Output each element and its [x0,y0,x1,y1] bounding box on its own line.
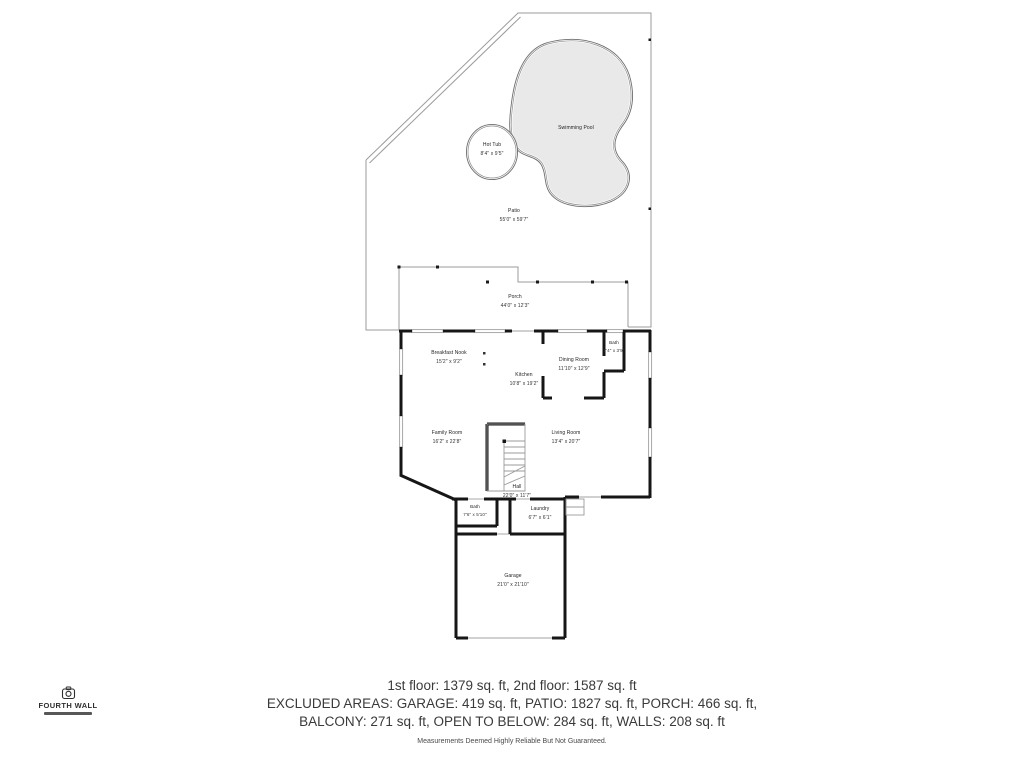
area-summary-line3: BALCONY: 271 sq. ft, OPEN TO BELOW: 284 … [0,713,1024,731]
room-name: Garage [497,572,529,581]
dining-room-label: Dining Room 11'10" x 12'9" [558,356,589,373]
floor-plan-page: Swimming Pool Hot Tub 8'4" x 9'5" Patio … [0,0,1024,768]
fourth-wall-logo: FOURTH WALL [22,686,114,715]
bath-upper-label: Bath 7'4" x 3'9" [604,339,625,354]
area-summary-line2: EXCLUDED AREAS: GARAGE: 419 sq. ft, PATI… [0,695,1024,713]
room-name: Hall [503,483,531,492]
area-summary: 1st floor: 1379 sq. ft, 2nd floor: 1587 … [0,677,1024,731]
family-room-label: Family Room 16'2" x 22'8" [432,429,463,446]
porch-posts [398,266,629,284]
room-name: Dining Room [558,356,589,365]
room-dims: 55'0" x 59'7" [500,216,529,225]
measurement-disclaimer: Measurements Deemed Highly Reliable But … [0,738,1024,745]
room-dims: 7'4" x 3'9" [604,347,625,355]
room-name: Porch [501,293,530,302]
room-dims: 11'10" x 12'9" [558,365,589,374]
room-name: Bath [604,339,625,347]
breakfast-nook-label: Breakfast Nook 15'2" x 9'2" [431,349,467,366]
room-dims: 44'0" x 12'3" [501,302,530,311]
room-name: Swimming Pool [558,124,594,133]
logo-name: FOURTH WALL [22,701,114,710]
hall-label: Hall 22'0" x 11'7" [503,483,531,500]
logo-tagline [44,712,92,715]
room-name: Family Room [432,429,463,438]
room-dims: 8'4" x 9'5" [481,150,504,159]
room-dims: 16'2" x 22'8" [432,438,463,447]
room-dims: 21'0" x 21'10" [497,581,529,590]
camera-icon [61,686,76,700]
kitchen-label: Kitchen 10'8" x 19'2" [510,371,539,388]
room-name: Breakfast Nook [431,349,467,358]
area-summary-line1: 1st floor: 1379 sq. ft, 2nd floor: 1587 … [0,677,1024,695]
room-dims: 22'0" x 11'7" [503,492,531,501]
porch-label: Porch 44'0" x 12'3" [501,293,530,310]
room-name: Kitchen [510,371,539,380]
room-name: Living Room [552,429,581,438]
room-dims: 6'7" x 6'1" [529,514,552,523]
room-dims: 7'6" x 5'10" [463,511,486,519]
room-dims: 10'8" x 19'2" [510,380,539,389]
staircase [487,424,525,491]
laundry-label: Laundry 6'7" x 6'1" [529,505,552,522]
bath-lower-label: Bath 7'6" x 5'10" [463,503,486,518]
front-stoop [566,499,584,515]
room-dims: 15'2" x 9'2" [431,358,467,367]
stair-post [503,440,507,444]
swimming-pool-label: Swimming Pool [558,124,594,133]
kitchen-markers [483,352,486,366]
room-name: Laundry [529,505,552,514]
hot-tub-label: Hot Tub 8'4" x 9'5" [481,141,504,158]
room-name: Bath [463,503,486,511]
room-dims: 13'4" x 20'7" [552,438,581,447]
patio-label: Patio 55'0" x 59'7" [500,207,529,224]
room-name: Hot Tub [481,141,504,150]
living-room-label: Living Room 13'4" x 20'7" [552,429,581,446]
garage-label: Garage 21'0" x 21'10" [497,572,529,589]
room-name: Patio [500,207,529,216]
